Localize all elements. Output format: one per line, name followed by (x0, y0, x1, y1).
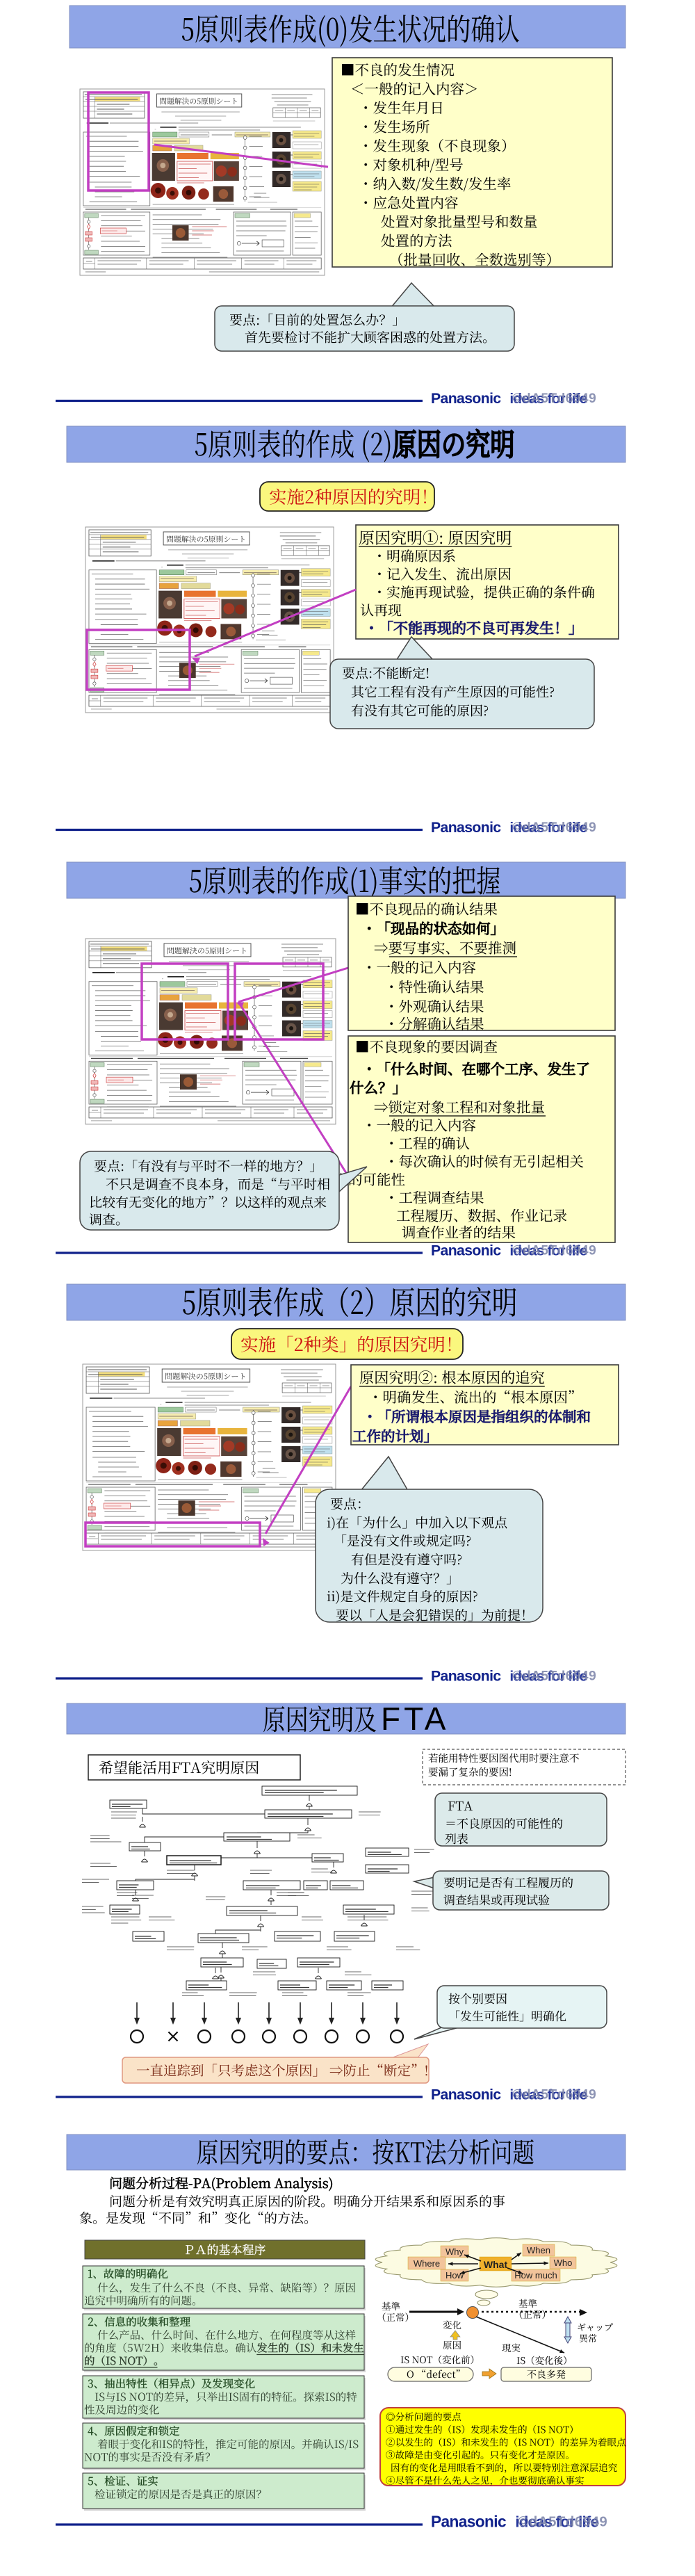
svg-text:©dA5Td6949: ©dA5Td6949 (518, 2515, 607, 2530)
svg-text:FTA: FTA (381, 1701, 449, 1737)
svg-text:©dA5Td6949: ©dA5Td6949 (512, 1669, 596, 1684)
svg-text:Panasonic: Panasonic (431, 391, 501, 407)
svg-text:Why: Why (445, 2246, 464, 2257)
svg-text:Panasonic: Panasonic (431, 820, 501, 836)
svg-text:Panasonic: Panasonic (431, 2087, 501, 2103)
svg-text:What: What (484, 2259, 508, 2270)
svg-text:Panasonic: Panasonic (431, 1669, 501, 1685)
svg-text:How much: How much (514, 2270, 557, 2281)
svg-text:©dA5Td6949: ©dA5Td6949 (512, 391, 596, 406)
svg-text:How: How (445, 2270, 464, 2281)
svg-text:When: When (527, 2245, 550, 2255)
svg-text:©dA5Td6949: ©dA5Td6949 (512, 1244, 596, 1258)
svg-text:©dA5Td6949: ©dA5Td6949 (512, 820, 596, 835)
svg-text:Where: Where (414, 2258, 440, 2269)
svg-text:©dA5Td6949: ©dA5Td6949 (512, 2088, 596, 2103)
svg-text:Panasonic: Panasonic (431, 2513, 506, 2531)
svg-text:Who: Who (554, 2258, 573, 2268)
svg-text:Panasonic: Panasonic (431, 1243, 501, 1259)
